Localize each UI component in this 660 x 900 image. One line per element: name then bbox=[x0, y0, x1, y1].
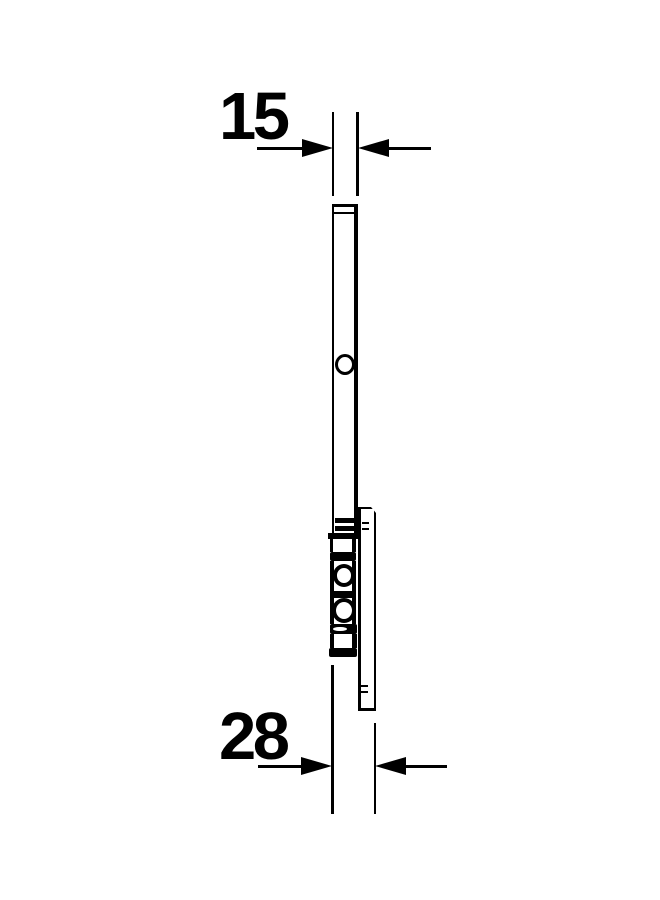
hinge-band bbox=[330, 552, 357, 561]
hinge-base-cap bbox=[329, 648, 357, 657]
mounting-hole bbox=[335, 354, 355, 375]
hinge-stripe bbox=[335, 518, 355, 523]
grip-mark bbox=[362, 528, 369, 531]
rear-panel-profile bbox=[358, 507, 377, 711]
extension-line-bottom-left bbox=[331, 665, 334, 814]
grip-mark bbox=[361, 685, 368, 688]
technical-drawing: 15 28 bbox=[0, 0, 660, 900]
hinge-band-highlight bbox=[333, 627, 347, 632]
hinge-band bbox=[330, 591, 357, 598]
arrowhead-left-icon bbox=[358, 139, 389, 157]
dimension-line-top-left-tail bbox=[257, 147, 303, 150]
dimension-top-label: 15 bbox=[219, 83, 287, 150]
hinge-housing-upper bbox=[330, 539, 357, 553]
dimension-bottom-label: 28 bbox=[219, 703, 287, 770]
grip-mark bbox=[362, 522, 369, 525]
hinge-stripe bbox=[335, 526, 355, 531]
panel-top-cap-seam bbox=[334, 212, 354, 214]
dimension-line-bottom-left-tail bbox=[258, 765, 302, 768]
dimension-line-bottom-right-tail bbox=[405, 765, 447, 768]
hinge-pin-lower bbox=[332, 598, 356, 623]
dimension-line-top-right-tail bbox=[388, 147, 431, 150]
hinge-pin-upper bbox=[333, 564, 356, 587]
arrowhead-right-icon bbox=[302, 139, 333, 157]
grip-mark bbox=[361, 691, 368, 694]
arrowhead-left-icon bbox=[375, 757, 406, 775]
arrowhead-right-icon bbox=[301, 757, 332, 775]
hinge-housing-lower bbox=[330, 634, 357, 649]
